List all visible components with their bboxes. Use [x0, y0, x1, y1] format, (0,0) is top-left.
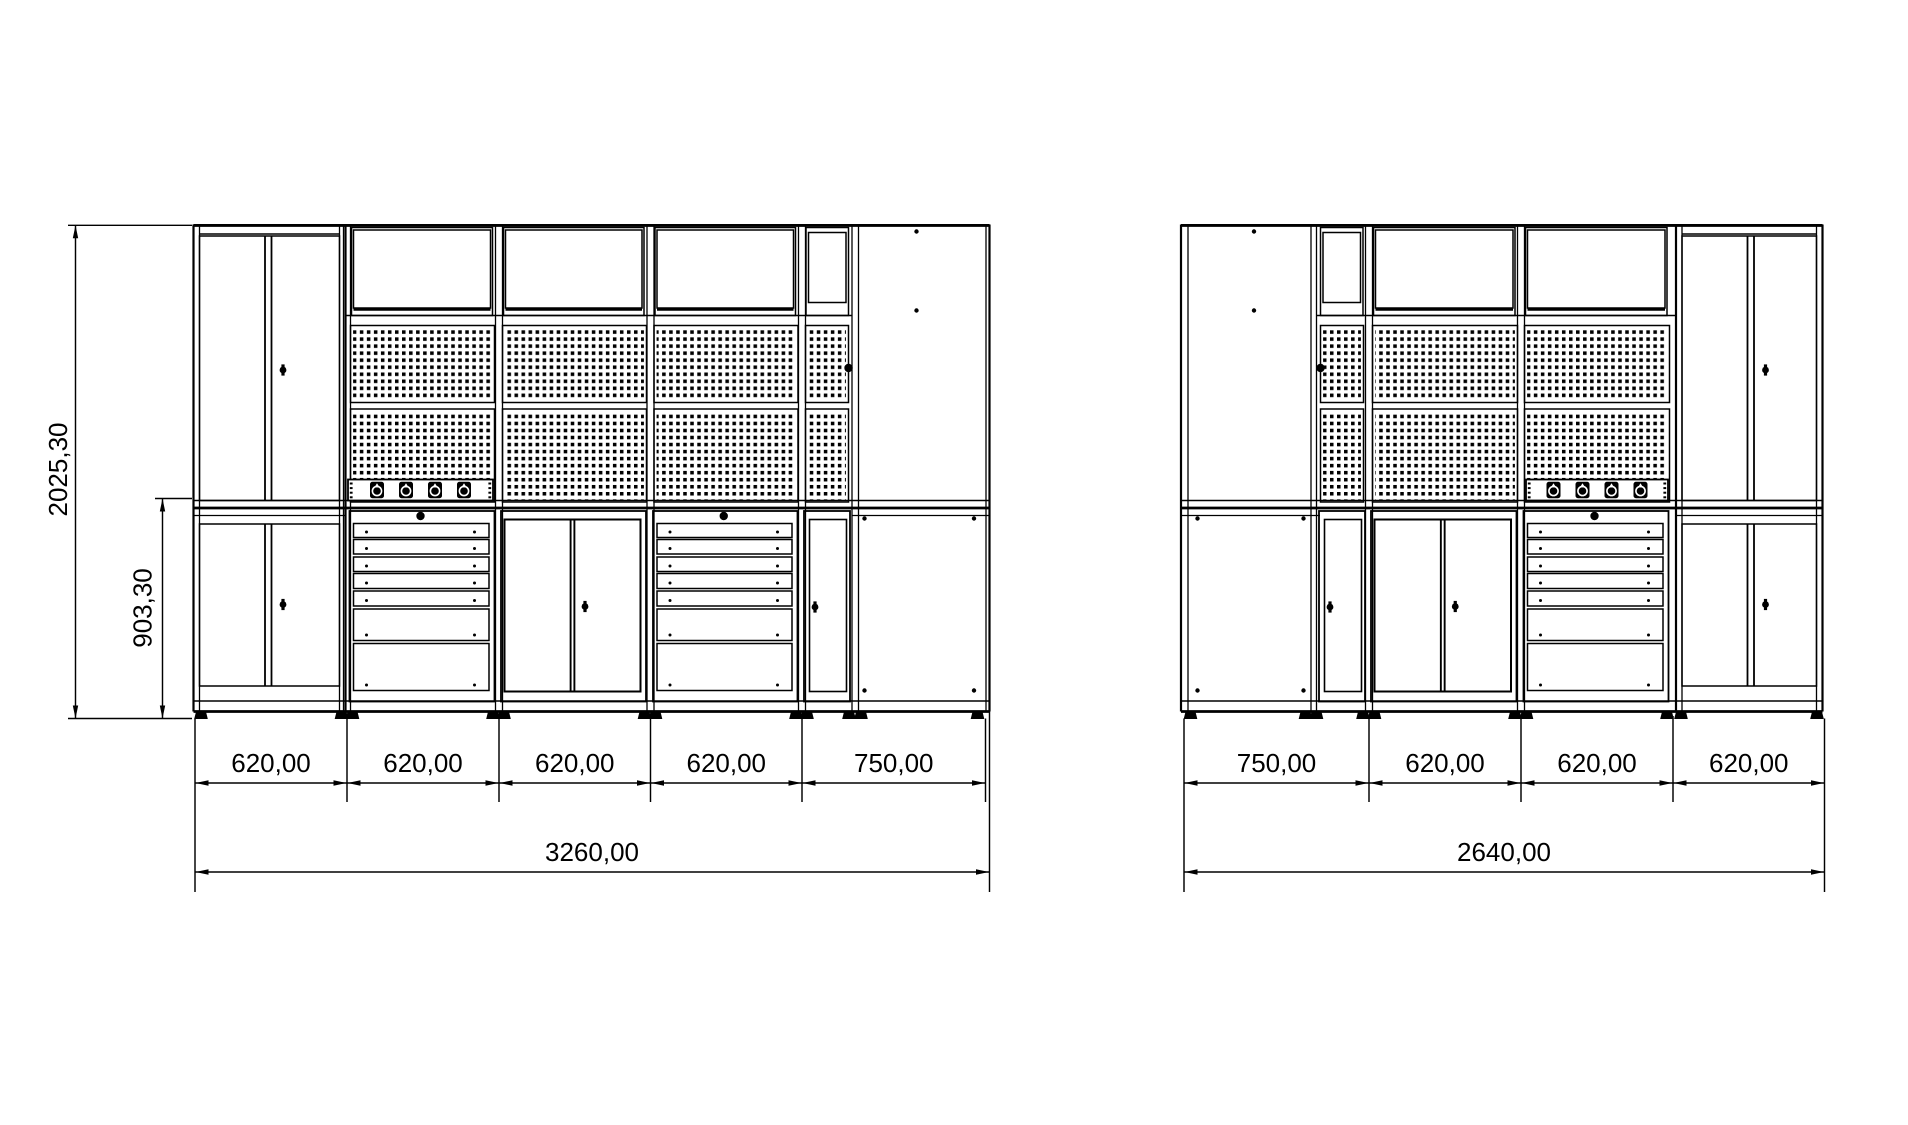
svg-text:620,00: 620,00: [1405, 748, 1485, 778]
svg-text:620,00: 620,00: [535, 748, 615, 778]
svg-text:620,00: 620,00: [1709, 748, 1789, 778]
svg-text:903,30: 903,30: [128, 568, 158, 648]
svg-text:620,00: 620,00: [686, 748, 766, 778]
svg-text:2025,30: 2025,30: [43, 423, 73, 517]
svg-text:2640,00: 2640,00: [1457, 837, 1551, 867]
svg-text:620,00: 620,00: [1557, 748, 1637, 778]
svg-text:750,00: 750,00: [854, 748, 934, 778]
svg-text:3260,00: 3260,00: [545, 837, 639, 867]
svg-text:620,00: 620,00: [231, 748, 311, 778]
svg-text:750,00: 750,00: [1237, 748, 1317, 778]
svg-text:620,00: 620,00: [383, 748, 463, 778]
